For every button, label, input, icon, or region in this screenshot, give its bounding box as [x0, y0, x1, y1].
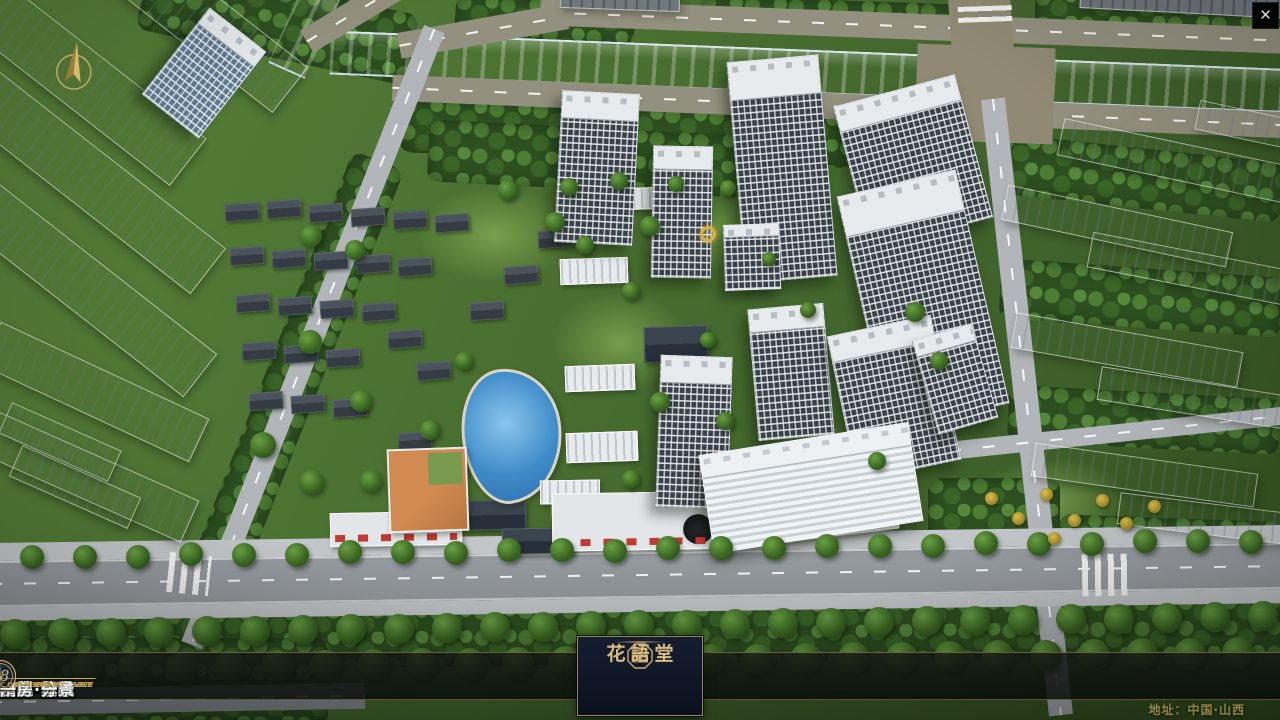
- street-tree: [1027, 532, 1051, 556]
- courtyard-house: [325, 348, 360, 368]
- tree: [868, 452, 886, 470]
- yellow-shrub: [985, 492, 998, 505]
- tree: [300, 470, 324, 494]
- yellow-shrub: [1048, 532, 1061, 545]
- tree: [930, 352, 948, 370]
- compass-icon: [50, 34, 98, 100]
- tree: [300, 225, 322, 247]
- midrise-block: [560, 257, 629, 285]
- tree: [420, 420, 440, 440]
- street-tree: [815, 534, 839, 558]
- crosswalk: [1082, 554, 1129, 597]
- street-tree: [603, 539, 627, 563]
- yellow-shrub: [1068, 514, 1081, 527]
- street-tree: [656, 536, 680, 560]
- highrise-tower: [747, 303, 834, 441]
- street-tree: [126, 545, 150, 569]
- tree: [350, 390, 372, 412]
- tree: [455, 352, 473, 370]
- tree: [762, 252, 776, 266]
- street-tree: [432, 613, 462, 643]
- courtyard-house: [248, 391, 283, 411]
- kindergarten-building: [387, 447, 470, 534]
- street-tree: [20, 545, 44, 569]
- tree: [360, 470, 382, 492]
- gold-sculpture: [700, 226, 716, 242]
- nav-subtitle: COMMUNITY: [0, 678, 67, 689]
- street-tree: [288, 615, 318, 645]
- tree: [622, 282, 640, 300]
- courtyard-house: [308, 203, 343, 223]
- street-tree: [240, 616, 270, 646]
- street-tree: [864, 607, 894, 637]
- project-logo-title: 花語堂: [601, 639, 678, 666]
- courtyard-house: [469, 301, 504, 321]
- street-tree: [921, 534, 945, 558]
- courtyard-house: [290, 394, 325, 414]
- tree: [668, 176, 684, 192]
- street-tree: [1080, 532, 1104, 556]
- street-tree: [912, 606, 942, 636]
- courtyard-house: [271, 249, 306, 269]
- midrise-block: [565, 431, 638, 463]
- street-tree: [528, 612, 558, 642]
- nav-separator: [0, 659, 1, 693]
- courtyard-house: [313, 251, 348, 271]
- tree: [622, 470, 640, 488]
- yellow-shrub: [1120, 517, 1133, 530]
- street-tree: [960, 606, 990, 636]
- aerial-view[interactable]: [0, 0, 1280, 720]
- street-tree: [73, 545, 97, 569]
- yellow-shrub: [1148, 500, 1161, 513]
- street-tree: [768, 608, 798, 638]
- tree: [560, 178, 578, 196]
- tree: [545, 212, 565, 232]
- gate-house: [468, 499, 527, 530]
- tree: [610, 172, 628, 190]
- yellow-shrub: [1040, 488, 1053, 501]
- courtyard-house: [361, 302, 396, 322]
- street-tree: [720, 609, 750, 639]
- courtyard-house: [387, 329, 422, 349]
- courtyard-house: [229, 246, 264, 266]
- tree: [498, 180, 518, 200]
- tree: [716, 412, 734, 430]
- logo-tagline-rule: [614, 641, 666, 643]
- street-tree: [96, 618, 126, 648]
- street-tree: [868, 534, 892, 558]
- street-tree: [1239, 530, 1263, 554]
- street-tree: [709, 536, 733, 560]
- street-tree: [384, 614, 414, 644]
- tree: [345, 240, 365, 260]
- tree: [640, 216, 660, 236]
- courtyard-house: [503, 265, 538, 285]
- street-tree: [232, 543, 256, 567]
- street-tree: [1056, 604, 1086, 634]
- tree: [298, 330, 322, 354]
- tree: [576, 236, 594, 254]
- street-tree: [816, 608, 846, 638]
- courtyard-house: [319, 299, 354, 319]
- tree: [700, 332, 716, 348]
- street-tree: [144, 617, 174, 647]
- street-tree: [497, 538, 521, 562]
- street-tree: [444, 541, 468, 565]
- tree: [250, 432, 276, 458]
- tree: [905, 302, 925, 322]
- street-tree: [1152, 603, 1182, 633]
- street-tree: [0, 619, 30, 649]
- close-button[interactable]: ✕: [1252, 2, 1279, 29]
- courtyard-house: [235, 293, 270, 313]
- courtyard-house: [392, 210, 427, 230]
- courtyard-house: [224, 202, 259, 222]
- courtyard-house: [416, 361, 451, 381]
- courtyard-house: [350, 207, 385, 227]
- presentation-window: ✕ o1 品牌·介绍 BRAND SUPPORT o2 区位·价值 LOCATI…: [0, 0, 1280, 720]
- yellow-shrub: [1096, 494, 1109, 507]
- courtyard-house: [266, 199, 301, 219]
- street-tree: [285, 543, 309, 567]
- project-logo-panel[interactable]: 花語堂: [577, 636, 703, 716]
- street-tree: [1200, 602, 1230, 632]
- crosswalk: [958, 5, 1013, 23]
- highrise-tower: [554, 90, 640, 246]
- highrise-tower: [651, 145, 713, 278]
- yellow-shrub: [1012, 512, 1025, 525]
- project-address: 地址：中国·山西: [1148, 701, 1245, 718]
- tree: [720, 180, 736, 196]
- midrise-block: [565, 364, 636, 392]
- street-tree: [1008, 605, 1038, 635]
- street-tree: [1133, 529, 1157, 553]
- tree: [800, 302, 816, 318]
- courtyard-house: [241, 341, 276, 361]
- courtyard-house: [277, 296, 312, 316]
- courtyard-house: [397, 257, 432, 277]
- tree: [650, 392, 670, 412]
- courtyard-house: [434, 213, 469, 233]
- street-tree: [1104, 604, 1134, 634]
